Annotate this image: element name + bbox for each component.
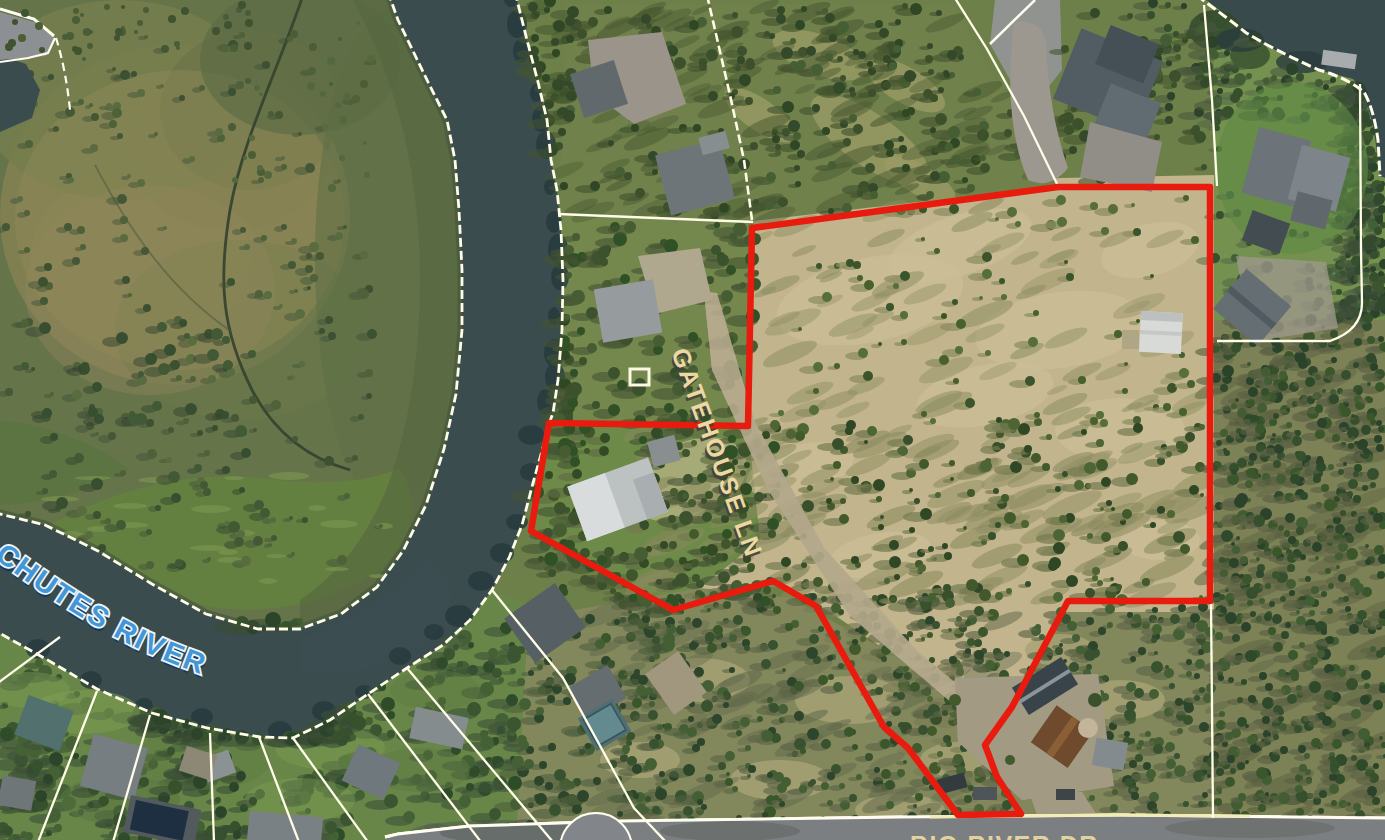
svg-text:BIG RIVER DR: BIG RIVER DR [910,831,1099,840]
